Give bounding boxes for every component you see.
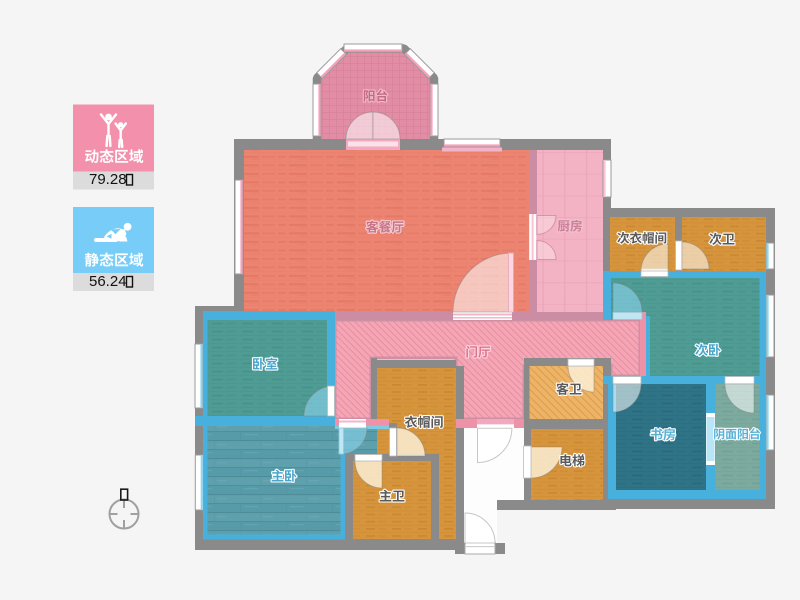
svg-text:79.28: 79.28 — [89, 171, 127, 188]
svg-text:56.24: 56.24 — [89, 273, 127, 290]
